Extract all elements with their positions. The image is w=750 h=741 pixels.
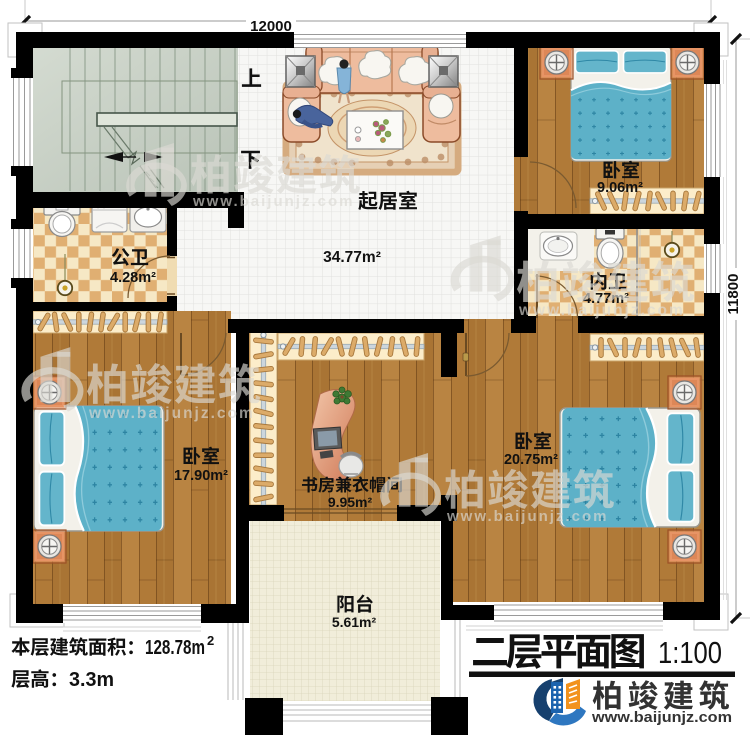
svg-text:3.3m: 3.3m bbox=[69, 668, 114, 691]
svg-text:9.06m²: 9.06m² bbox=[597, 180, 643, 196]
svg-text:1:100: 1:100 bbox=[658, 635, 722, 670]
svg-text:128.78m: 128.78m bbox=[145, 636, 205, 659]
svg-text:www.baijunjz.com: www.baijunjz.com bbox=[88, 405, 255, 422]
svg-text:17.90m²: 17.90m² bbox=[174, 468, 228, 484]
svg-text:2: 2 bbox=[207, 633, 214, 648]
svg-text:5.61m²: 5.61m² bbox=[332, 614, 377, 630]
svg-text:www.baijunjz.com: www.baijunjz.com bbox=[446, 508, 608, 525]
svg-text:4.28m²: 4.28m² bbox=[110, 270, 156, 286]
svg-text:34.77m²: 34.77m² bbox=[323, 249, 381, 266]
svg-text:www.baijunjz.com: www.baijunjz.com bbox=[591, 710, 732, 726]
svg-text:20.75m²: 20.75m² bbox=[504, 452, 558, 468]
svg-text:9.95m²: 9.95m² bbox=[328, 494, 373, 510]
svg-text:www.baijunjz.com: www.baijunjz.com bbox=[518, 302, 685, 319]
svg-text:11800: 11800 bbox=[725, 274, 742, 315]
svg-text:www.baijunjz.com: www.baijunjz.com bbox=[192, 193, 354, 210]
